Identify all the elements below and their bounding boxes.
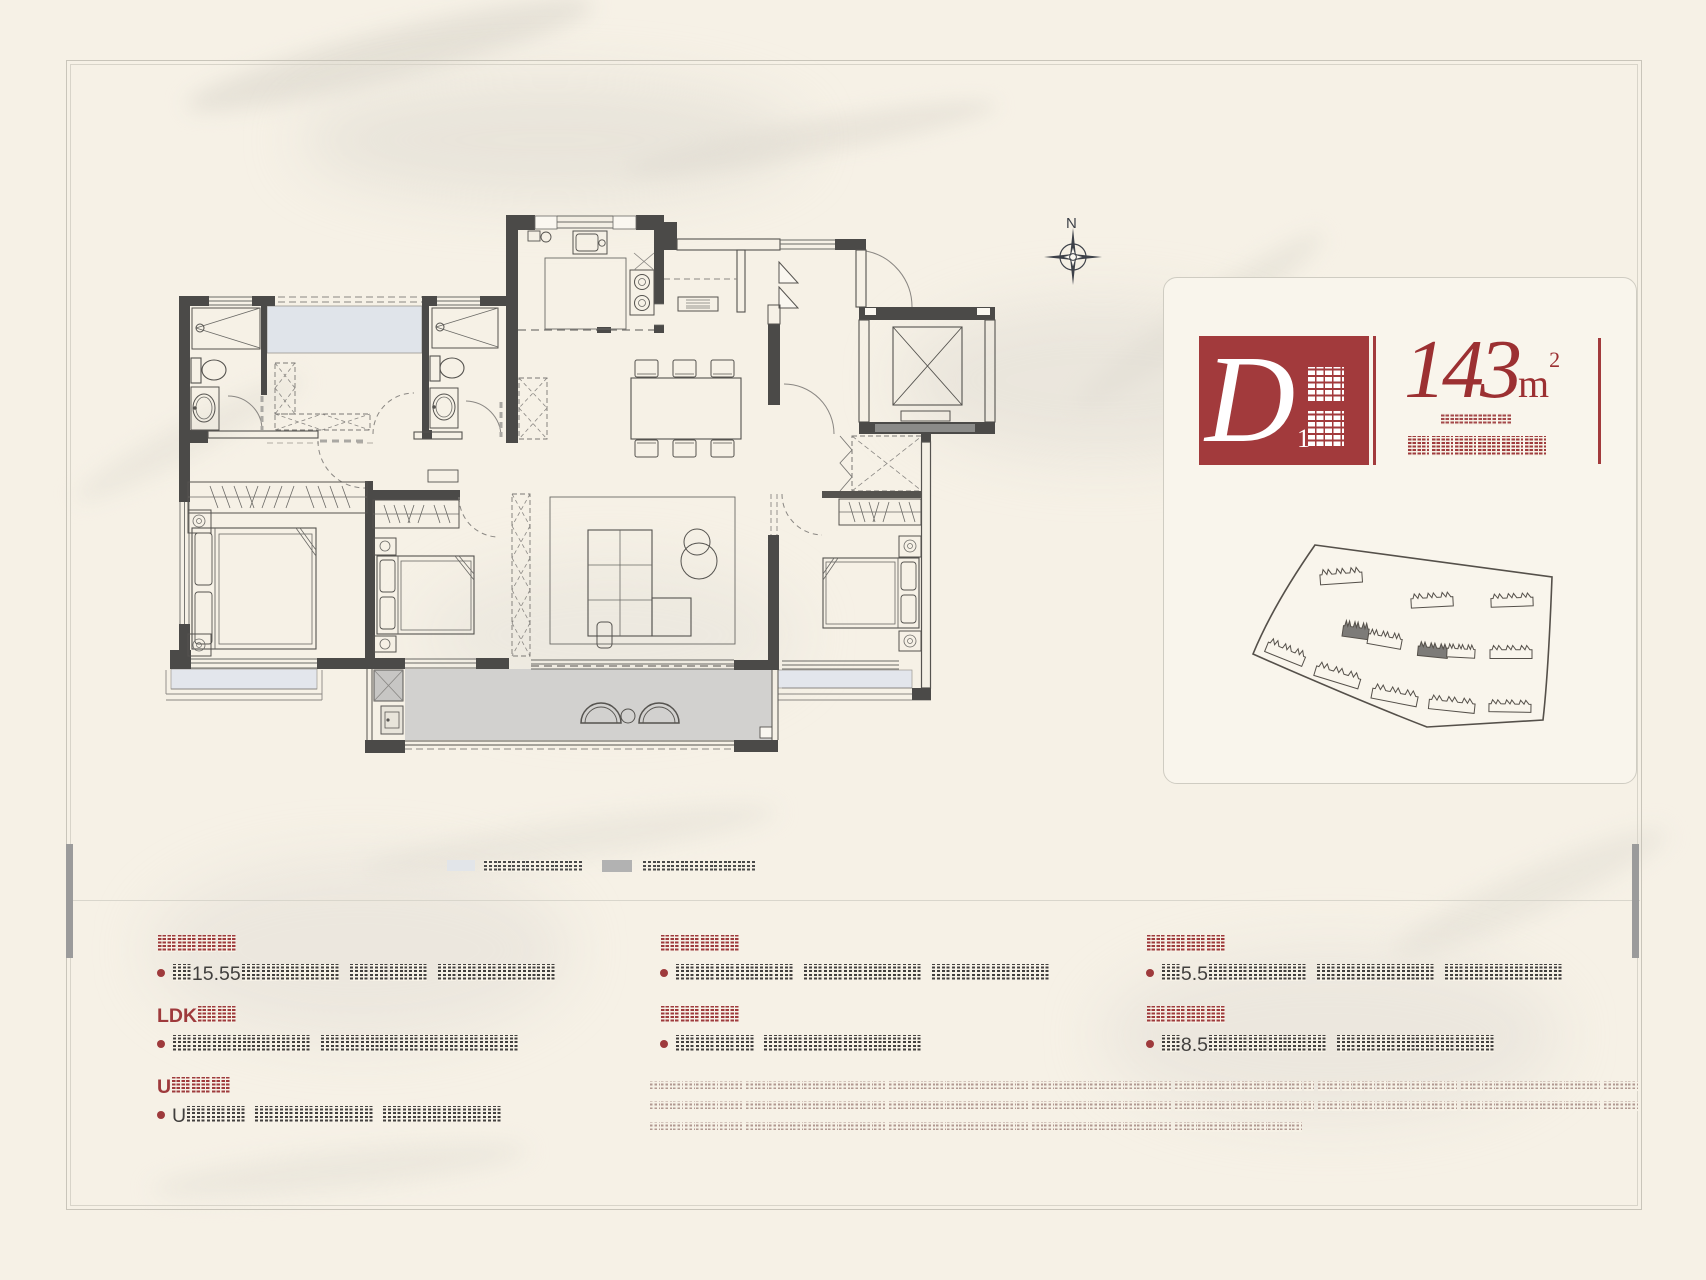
svg-text:N: N — [1066, 215, 1077, 232]
